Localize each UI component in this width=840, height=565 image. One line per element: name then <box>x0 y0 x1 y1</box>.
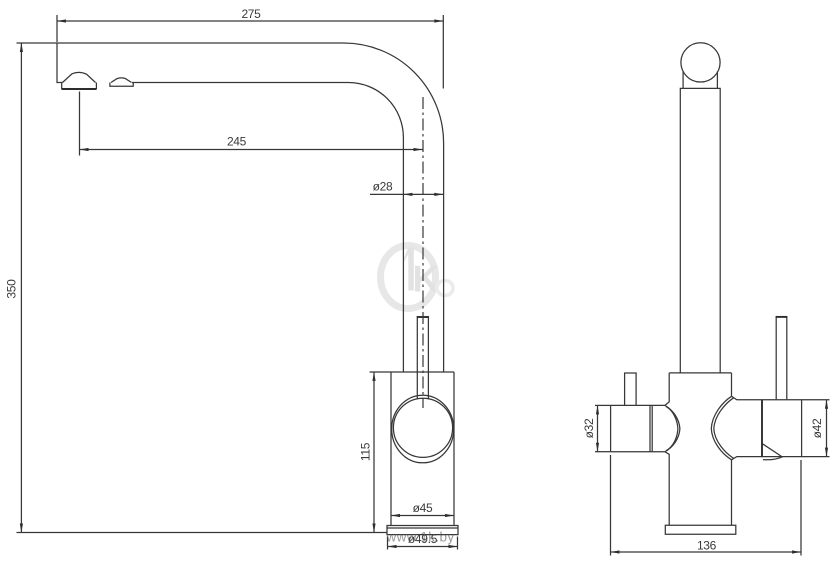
svg-text:www.1k.by: www.1k.by <box>385 530 454 545</box>
svg-text:K: K <box>413 259 440 300</box>
svg-text:ø28: ø28 <box>373 180 393 194</box>
svg-text:115: 115 <box>359 442 373 461</box>
svg-text:ø45: ø45 <box>413 501 433 515</box>
svg-text:ø32: ø32 <box>582 418 596 438</box>
svg-text:350: 350 <box>5 279 19 299</box>
svg-text:275: 275 <box>241 7 261 21</box>
svg-text:136: 136 <box>697 539 717 553</box>
svg-text:245: 245 <box>227 135 247 149</box>
svg-text:ø42: ø42 <box>810 418 824 438</box>
